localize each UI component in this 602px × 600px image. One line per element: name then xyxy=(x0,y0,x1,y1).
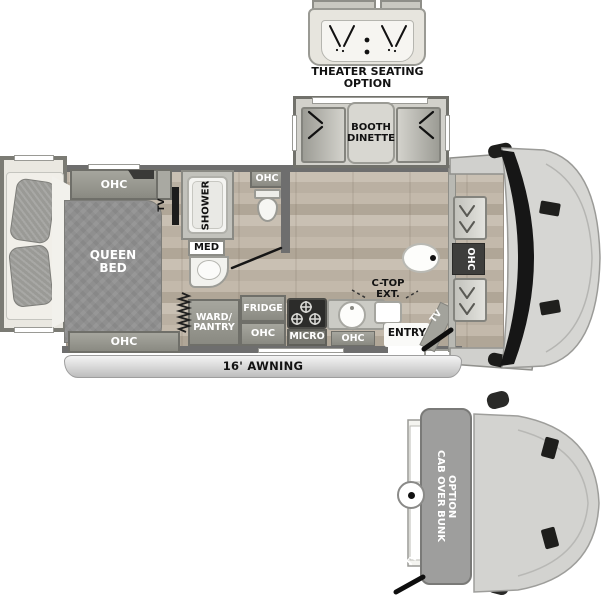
wardrobe-pantry: WARD/PANTRY xyxy=(188,299,240,346)
toilet-ohc: OHC xyxy=(250,170,284,188)
dinette-side-window-left xyxy=(292,115,297,151)
fridge: FRIDGE xyxy=(240,295,286,322)
bedroom-ohc-bottom: OHC xyxy=(68,331,180,353)
countertop-extension xyxy=(374,301,402,324)
theater-option-label: THEATER SEATINGOPTION xyxy=(295,66,440,90)
sink-faucet xyxy=(350,306,354,310)
bedroom-tv xyxy=(172,187,179,225)
ohc-label: OHC xyxy=(342,334,365,344)
stove xyxy=(287,298,327,329)
cab-front-body xyxy=(440,136,602,374)
bunk-option-label: CAB OVER BUNKOPTION xyxy=(420,408,472,585)
med-label: MED xyxy=(188,242,225,253)
bed-slide-window-bottom xyxy=(14,327,54,333)
bunk-exterior-light-dot xyxy=(408,492,415,499)
ohc-label: OHC xyxy=(101,179,128,191)
bunk-cab-hood xyxy=(474,414,599,592)
ohc-label: OHC xyxy=(251,329,275,340)
pillow xyxy=(9,178,57,245)
dinette-label: BOOTHDINETTE xyxy=(331,122,411,144)
ohc-label: OHC xyxy=(256,174,279,184)
sink-ohc: OHC xyxy=(331,331,375,346)
fridge-ohc: OHC xyxy=(240,322,286,346)
ctop-ext-label: C-TOPEXT. xyxy=(358,278,418,300)
bed-slide-window-top xyxy=(14,155,54,161)
mirror-icon xyxy=(485,389,510,410)
pillow xyxy=(8,244,54,308)
awning-label: 16' AWNING xyxy=(64,360,462,373)
bath-wall xyxy=(281,165,290,253)
theater-sofa-seat xyxy=(321,20,414,62)
window-bottom-mid xyxy=(258,348,344,353)
bedroom-tv-label: TV xyxy=(158,191,170,219)
micro-label: MICRO xyxy=(285,332,329,342)
cab-table-pedestal xyxy=(430,255,436,261)
shower-label: SHOWER xyxy=(201,176,214,236)
vanity-sink xyxy=(197,260,221,280)
queen-bed-label: QUEENBED xyxy=(64,249,162,275)
rv-floorplan-diagram: QUEENBED OHC TV OHC SHOWER MED OHC WARD/… xyxy=(0,0,602,600)
ohc-label: OHC xyxy=(111,336,138,348)
